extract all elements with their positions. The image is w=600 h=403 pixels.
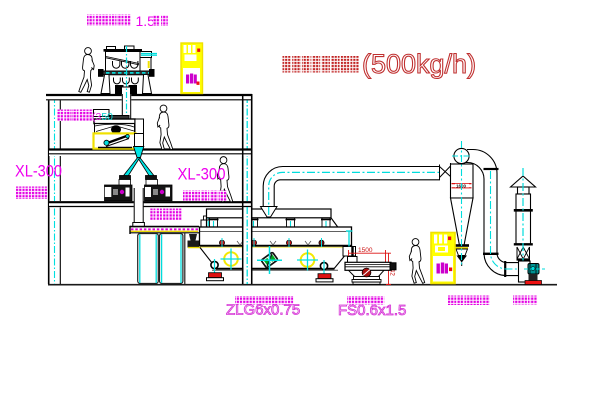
svg-text:FS0.6x1.5: FS0.6x1.5 <box>338 302 406 319</box>
svg-text:1500: 1500 <box>358 247 373 254</box>
svg-text:(500kg/h): (500kg/h) <box>362 49 476 79</box>
svg-text:XL-300: XL-300 <box>15 162 62 181</box>
svg-text:(350: (350 <box>92 111 113 123</box>
svg-text:ZLG6x0.75: ZLG6x0.75 <box>226 302 300 319</box>
svg-text:1.5: 1.5 <box>136 13 156 29</box>
svg-text:XL-300: XL-300 <box>178 165 226 184</box>
